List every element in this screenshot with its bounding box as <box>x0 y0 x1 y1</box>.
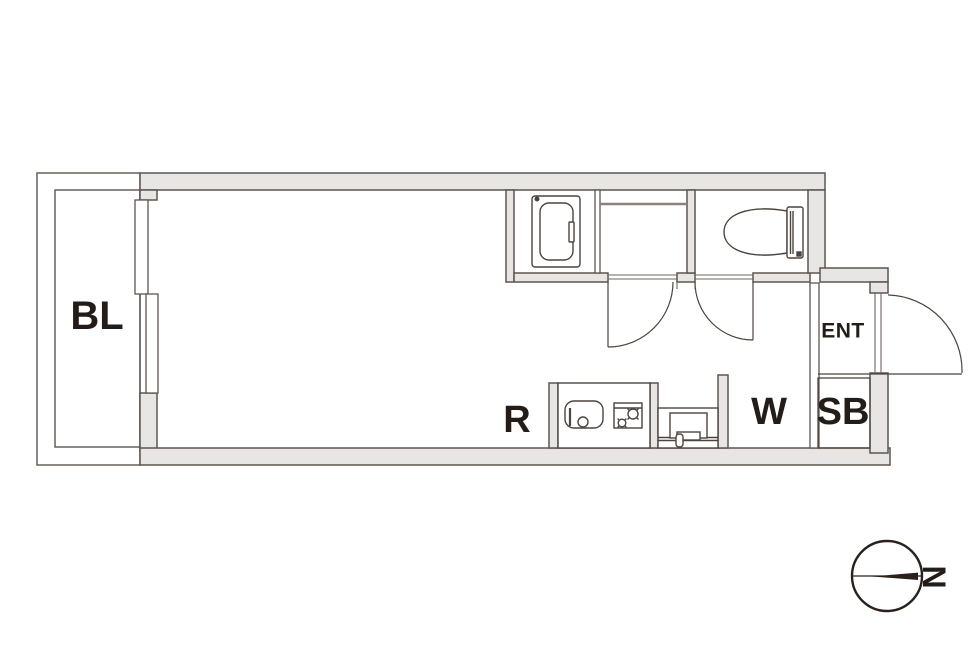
door-swings <box>608 282 962 374</box>
shoe-box-label: SB <box>817 391 870 433</box>
kitchen-counter <box>558 383 650 448</box>
wall-top <box>140 173 825 190</box>
floor-plan-svg: BL R W SB ENT N <box>0 0 980 655</box>
wall-entry-step <box>820 268 888 282</box>
toilet-door-swing <box>695 282 753 340</box>
wall-kitchen-stub <box>549 383 558 448</box>
wall-washroom-toilet-divider <box>687 190 695 273</box>
balcony-label: BL <box>70 294 123 338</box>
compass-needle <box>872 573 918 580</box>
washer-area-label: W <box>751 391 787 433</box>
entrance-label: ENT <box>821 320 865 343</box>
compass-north-label: N <box>916 565 952 588</box>
wall-east-below-door <box>870 373 888 453</box>
kitchen-sink-icon <box>565 401 603 428</box>
wall-west-upper-stub <box>140 190 157 200</box>
wall-bathroom-west <box>506 190 514 282</box>
room-label: R <box>503 399 530 441</box>
wall-counter-pan-stub <box>650 383 658 448</box>
wall-pan-east-stub <box>718 375 728 448</box>
wall-bathroom-south-left <box>514 273 608 282</box>
washing-machine-icon <box>658 408 718 448</box>
compass-icon: N <box>851 541 952 611</box>
gas-stove-icon <box>614 403 642 428</box>
wall-west-lower-stub <box>140 393 157 451</box>
bath-washroom-divider <box>595 190 600 273</box>
toilet-icon <box>724 207 803 258</box>
wall-east-above-door <box>870 282 888 293</box>
wall-door-post <box>677 273 695 282</box>
bathtub-icon <box>532 196 580 267</box>
bathroom-door-swing <box>608 282 673 347</box>
wall-bathroom-south-right <box>753 273 810 282</box>
wall-bottom <box>140 448 890 465</box>
wall-toilet-east <box>808 190 825 273</box>
floor-plan: BL R W SB ENT N <box>0 0 980 655</box>
room-labels: BL R W SB ENT <box>70 294 869 441</box>
